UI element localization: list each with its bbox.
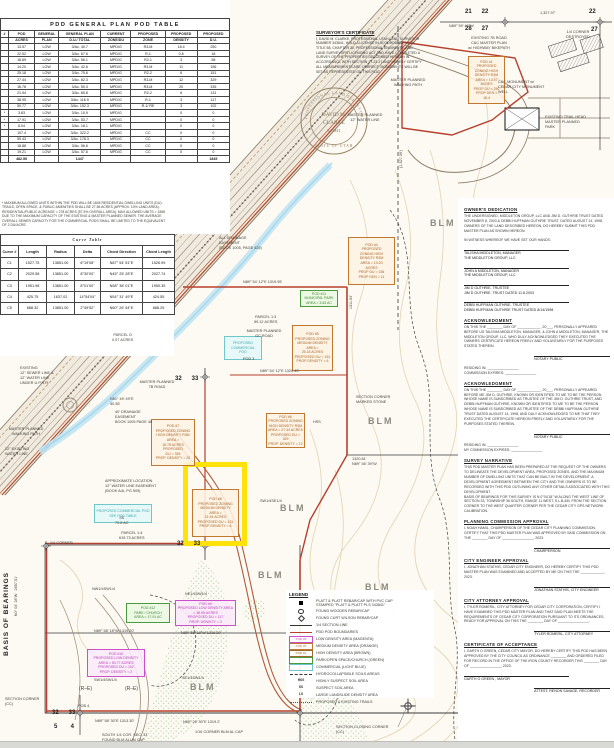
plat-sheet: PROFESSIONAL LAND SURVEYOR DAVID M. CLAR… xyxy=(0,0,614,748)
parcel-d: PARCEL D 0.07 ACRES xyxy=(112,333,133,343)
legend-dash-symbol xyxy=(289,672,313,678)
existing-sewer-label: EXISTING 12" SEWER LINE & 12" WATER LINE… xyxy=(20,366,58,386)
drainage-easement-2: 40' DRAINAGE EASEMENT BOOK 1005 PAGE 48 xyxy=(115,410,161,425)
legend-dots-symbol xyxy=(289,700,313,706)
pod-box-8: POD #8 PROPOSED ZONING MEDIUM DENSITY AR… xyxy=(192,489,239,537)
legend-item: HSSHIGHLY SUSPECT SOIL AREA xyxy=(289,679,431,685)
legend-title: LEGEND xyxy=(289,592,431,597)
legend-box-symbol: POD #1 xyxy=(289,651,313,657)
trail-head-box xyxy=(505,108,539,130)
bearing-top: N89° 59' 40"W xyxy=(449,24,474,29)
table-row: 59.43LOW3/Ac. 178.3MPD/GCC00 xyxy=(1,136,230,143)
legend-item-label: HIGHLY SUSPECT SOIL AREA xyxy=(316,679,368,683)
re-label-1: (R–E) xyxy=(79,686,92,693)
water-line-ne: MASTER PLANNED 12" WATER LINE xyxy=(347,113,383,123)
section-32-33-b: 32 33 xyxy=(177,541,200,547)
basis-of-bearings: BASIS OF BEARINGS xyxy=(3,572,10,656)
blm-label-5: BLM xyxy=(365,582,391,592)
table-row: C11527.7513851.006°19'08"N87° 54' 51"E15… xyxy=(1,257,175,268)
signature-line: ATTEST: RENON SAVAGE, RECORDER xyxy=(534,688,610,694)
legend-item: HYDROCOLLAPSIBLE SOILS AREAS xyxy=(289,672,431,678)
legend-redline-symbol xyxy=(289,630,313,636)
legend-box-symbol xyxy=(289,658,313,664)
walking-path-sw: MASTER PLANNED WALKING PATH xyxy=(8,427,44,437)
table-row: 18.88LOW3/Ac. 56.6MPD/GCC00 xyxy=(1,143,230,150)
legend-item: PROPOSED & EXISTING TRAILS xyxy=(289,700,431,706)
table-row: 50.77LOW3/Ac. 152.3MPD/GR-1/ RE3102 xyxy=(1,103,230,110)
corner-1-16: 1/16 CORNER BLM AL CAP xyxy=(195,730,243,735)
legend-items: PLATT & PLATT REBAR/CAP WITH PVC CAP STA… xyxy=(289,599,431,705)
ss-soil-area: SS 70.8 AC xyxy=(115,516,129,526)
seal-ring-bottom: STATE OF UTAH xyxy=(315,144,353,148)
certificate-body: THIS PDD MASTER PLAN HAS BEEN PREPARED A… xyxy=(464,465,610,514)
legend-line-symbol xyxy=(289,623,313,629)
blm-label-1: BLM xyxy=(430,218,456,228)
pod-box-9: POD #9 PROPOSED LOW DENSITY AREA = 38.95… xyxy=(175,600,236,626)
table-row: 13.57LOW3/Ac. 40.7MPD/GR3-M18.4250 xyxy=(1,44,230,51)
bearing-633b: N89° 55' 18"W 1319.20' xyxy=(181,631,221,636)
blm-label-4: BLM xyxy=(258,570,284,580)
legend-sq-symbol xyxy=(289,600,313,606)
legend-item-label: PLATT & PLATT REBAR/CAP WITH PVC CAP STA… xyxy=(316,599,393,607)
table-row: C31951.9813851.008°01'00"N58° 38' 01"E19… xyxy=(1,280,175,291)
quarter-sw14sw: SW1/4SW1/4 xyxy=(94,678,117,683)
legend-item: SSSUSPECT SOIL AREA xyxy=(289,686,431,692)
approx-water-easement: APPROXIMATE LOCATION 12" WATER LINE EASE… xyxy=(105,479,157,494)
legend-item-label: PDD POD BOUNDARIES xyxy=(316,630,358,634)
legend-item-label: MEDIUM DENSITY AREA (ORANGE) xyxy=(316,644,378,648)
distance-1320: 1320.81' N89° 46' 39"W xyxy=(352,457,377,467)
section-numbers-21-22: 21 22 xyxy=(465,9,488,15)
table-row: 21.94LOW3/Ac. 65.8MPD/GR2-26131 xyxy=(1,90,230,97)
bearing-n51: N51° 49' 49"E 50.35' xyxy=(110,397,134,407)
legend-item-label: PROPOSED & EXISTING TRAILS xyxy=(316,700,373,704)
signature-line: TYLER ROMERIL, CITY ATTORNEY xyxy=(534,631,610,637)
table-row: 19.21LOW3/Ac. 57.6MPD/GCC00 xyxy=(1,149,230,156)
certificate-block: CERTIFICATE OF ACCEPTANCEI, GARTH O GREE… xyxy=(464,642,610,694)
section-number-22r: 22 xyxy=(589,9,596,15)
certificate-block: CITY ATTORNEY APPROVALI, TYLER ROMERIL, … xyxy=(464,598,610,637)
basis-bearing-value: N0° 04' 18"W 2657.51' xyxy=(14,576,18,616)
signature-line: JONATHAN STATHIS, CITY ENGINEER xyxy=(534,587,610,593)
blm-label-3: BLM xyxy=(280,503,306,513)
legend-item: POD #5MEDIUM DENSITY AREA (ORANGE) xyxy=(289,644,431,650)
certificate-title: ACKNOWLEDGMENT xyxy=(464,318,610,323)
table-row: C5688.3213851.002°49'52"N60° 26' 54"E688… xyxy=(1,303,175,314)
signature-line: JOHN A MIDDLETON, MANAGER THE MIDDLETON … xyxy=(464,268,569,278)
pod-table: PDD GENERAL PLAN POD TABLE#PODGENERALGEN… xyxy=(0,18,230,163)
signature-line: GARTH O GREEN , MAYOR xyxy=(464,676,569,682)
certificate-title: OWNER'S DEDICATION xyxy=(464,207,610,212)
quarter-sw14se: SW1/4SE1/4 xyxy=(260,499,282,504)
table-row: C4425.751637.0214°54'04"N54° 31' 49"E424… xyxy=(1,291,175,302)
pod-box-4: POD #4 PROPOSED ZONING HIGH DENSITY R3M … xyxy=(348,237,395,285)
legend-diamond-symbol xyxy=(289,616,313,622)
certificates-panel: OWNER'S DEDICATIONTHE UNDERSIGNED, MIDDL… xyxy=(458,198,614,748)
curve-table: Curve TableCurve #LengthRadiusDeltaChord… xyxy=(0,234,175,315)
pod-box-5: POD #5 PROPOSED ZONING MEDIUM DENSITY AR… xyxy=(292,325,333,371)
hss-label: HSS xyxy=(313,420,321,425)
parcel-1-4: PARCEL 1:4 615.73 ACRES xyxy=(119,531,145,541)
existing-water-line: 12" EXISTING WATER LINE xyxy=(5,447,29,457)
section-32-33-c: 32 33 xyxy=(52,710,75,716)
legend-item-label: FOUND CURT WILSON REBAR/CAP xyxy=(316,616,378,620)
signature-line: TALISHA MIDDLETON, MANAGER THE MIDDLETON… xyxy=(464,250,569,260)
legend-text-symbol: HSS xyxy=(289,679,313,685)
certificate-title: PLANNING COMMISSION APPROVAL xyxy=(464,519,610,524)
signature-line: NOTARY PUBLIC xyxy=(534,356,610,362)
bearing-bottom-1: N89° 58' 30"E 1313.30' xyxy=(95,719,134,724)
certificate-title: CERTIFICATE OF ACCEPTANCE xyxy=(464,642,610,647)
table-title-row: PDD GENERAL PLAN POD TABLE xyxy=(1,19,230,31)
pod-table-footnote: * MAXIMUM ALLOWED UNITS WITHIN THE PDD W… xyxy=(2,201,228,228)
certificate-body: ON THIS THE ________ DAY OF ____________… xyxy=(464,325,610,349)
table-row: 18.69LOW3/Ac. 56.1MPD/GR2-1358 xyxy=(1,57,230,64)
certificate-block: ACKNOWLEDGMENTON THIS THE ________ DAY O… xyxy=(464,381,610,454)
legend-item: PDD POD BOUNDARIES xyxy=(289,630,431,636)
legend-item: FOUND WOODEN REBAR/CAP xyxy=(289,609,431,615)
legend-item: POD #9LOW DENSITY AREA (MAGENTA) xyxy=(289,637,431,643)
legend-text-symbol: LS xyxy=(289,693,313,699)
certificate-block: SURVEY NARRATIVETHIS PDD MASTER PLAN HAS… xyxy=(464,458,610,514)
pod-box-10: POD #10 PROPOSED LOW DENSITY AREA = 50.7… xyxy=(87,649,145,677)
legend-item-label: SUSPECT SOIL AREA xyxy=(316,686,354,690)
table-row: 22.52LOW3/Ac. 67.6MPD/GR-10.818 xyxy=(1,50,230,57)
seal-name-1: DAVID M. xyxy=(322,112,347,118)
certificate-body: I, NOAH HAMIL, CHAIRPERSON OF THE CEDAR … xyxy=(464,526,610,541)
pod-table-panel: PDD GENERAL PLAN POD TABLE#PODGENERALGEN… xyxy=(0,0,230,234)
table-row: *6.04LOW3/Ac. 18.1MPD/G00 xyxy=(1,123,230,130)
pob-4-label: POB 4 xyxy=(78,704,89,709)
certificate-title: CITY ATTORNEY APPROVAL xyxy=(464,598,610,603)
surveyor-certificate-title: SURVEYOR'S CERTIFICATE xyxy=(316,30,422,35)
seal-number: 343841 xyxy=(327,128,341,133)
legend-item: LSLARGE LANDSLIDE DENSITY AREA xyxy=(289,693,431,699)
legend-text-symbol: SS xyxy=(289,686,313,692)
parcel-1-3: PARCEL 1:3 59.12 ACRES xyxy=(254,315,277,325)
legend-item-label: LOW DENSITY AREA (MAGENTA) xyxy=(316,637,373,641)
legend-item-label: HIGH DENSITY AREA (BROWN) xyxy=(316,651,370,655)
table-row: 38.95LOW3/Ac. 116.9MPD/GR-13117 xyxy=(1,96,230,103)
certificate-title: CITY ENGINEER APPROVAL xyxy=(464,558,610,563)
legend-panel: LEGEND PLATT & PLATT REBAR/CAP WITH PVC … xyxy=(286,590,434,698)
master-7b-road: MASTER PLANNED 7B ROAD xyxy=(138,380,176,390)
bearing-bottom-2: N89° 26' 30"E 1319.2' xyxy=(183,720,220,725)
certificate-block: PLANNING COMMISSION APPROVALI, NOAH HAMI… xyxy=(464,519,610,553)
section-5-4: 5 4 xyxy=(54,724,74,730)
legend-item-label: COMMERCIAL (LIGHT BLUE) xyxy=(316,665,366,669)
certificate-after-lines: RESIDING IN: ________________ MY COMMISS… xyxy=(464,443,610,453)
table-row: C22029.5813851.008°30'00"N45° 25' 28"E20… xyxy=(1,269,175,280)
legend-box-symbol: POD #5 xyxy=(289,644,313,650)
certificate-body: I, GARTH O GREEN, CEDAR CITY MAYOR, DO H… xyxy=(464,649,610,669)
distance-1327v: (1,327.39') xyxy=(399,150,403,168)
table-row: 25.18LOW3/Ac. 75.6MPD/GR2-26151 xyxy=(1,70,230,77)
legend-circle-symbol xyxy=(289,609,313,615)
section-corner-stone: SECTION CORNER MARKED STONE xyxy=(356,395,396,405)
legend-item-label: HYDROCOLLAPSIBLE SOILS AREAS xyxy=(316,672,380,676)
legend-item: COMMERCIAL (LIGHT BLUE) xyxy=(289,665,431,671)
signature-line: JIM D GUTHRIE, TRUSTEE JIM D GUTHRIE, TR… xyxy=(464,285,569,295)
section-corner-cc: SECTION CORNER (CC) xyxy=(5,697,39,707)
legend-item-label: LARGE LANDSLIDE DENSITY AREA xyxy=(316,693,378,697)
bearing-287: N89° 54' 12"E 1319.95' xyxy=(243,280,282,285)
table-row: 16.78LOW3/Ac. 50.3MPD/GR3-M20335 xyxy=(1,83,230,90)
table-row: *3.63LOW3/Ac. 10.9MPD/G00 xyxy=(1,110,230,117)
legend-item-label: FOUND WOODEN REBAR/CAP xyxy=(316,609,369,613)
pod-box-12: POD #12 PARK / CHURCH AREA = 17.91 AC xyxy=(126,603,170,623)
legend-item: POD #1HIGH DENSITY AREA (BROWN) xyxy=(289,651,431,657)
seal-name-2: CLARKE xyxy=(323,120,346,126)
certificate-block: CITY ENGINEER APPROVALI, JONATHAN STATHI… xyxy=(464,558,610,592)
table-header-row: ACRESPLAND.U./ TOTALZONE/DUZONEDENSITYD.… xyxy=(1,37,230,44)
certificate-title: SURVEY NARRATIVE xyxy=(464,458,610,463)
blm-label-6: BLM xyxy=(190,682,216,692)
certificate-body: THE UNDERSIGNED, MIDDLETON GROUP, LLC AN… xyxy=(464,214,610,243)
gc-road-label: MASTER PLANNED GC ROAD xyxy=(246,329,282,339)
certificate-after-lines: RESIDING IN: ________________ COMMISSION… xyxy=(464,366,610,376)
certificate-title: ACKNOWLEDGMENT xyxy=(464,381,610,386)
quarter-se14sw: SE1/4SW1/4 xyxy=(182,676,204,681)
legend-item-label: 1/4 SECTION LINE xyxy=(316,623,348,627)
table-row: *17.91LOW3/Ac. 53.7MPD/G00 xyxy=(1,116,230,123)
certificate-body: I, JONATHAN STATHIS, CEDAR CITY ENGINEER… xyxy=(464,565,610,580)
pod-box-6: POD #6 PROPOSED ZONING HIGH DENSITY R3M … xyxy=(266,413,305,448)
quarter-nw14sw: NW1/4SW1/4 xyxy=(92,587,115,592)
pod-box-7: POD #7 PROPOSED ZONING HIGH DENSITY R3M … xyxy=(151,419,195,466)
trail-head-label: EXISTING TRAIL HEAD MASTER PLANNED PARK xyxy=(545,115,591,130)
bearing-633a: N89° 58' 18"W 1319.20' xyxy=(94,629,134,634)
legend-item: 1/4 SECTION LINE xyxy=(289,623,431,629)
quarter-corner: 1/4 CORNER xyxy=(50,541,73,546)
re-label-2: (R–E) xyxy=(125,686,138,693)
signature-line: CHAIRPERSON xyxy=(534,548,610,554)
surveyor-certificate: SURVEYOR'S CERTIFICATE I, DAVID M. CLARK… xyxy=(316,30,422,74)
table-row: 27.44LOW3/Ac. 82.3MPD/GR3-M12329 xyxy=(1,77,230,84)
legend-item: PARK/OPEN SPACE/CHURCH (GREEN) xyxy=(289,658,431,664)
existing-7b-road-label: EXISTING 7B ROAD C&C MASTER PLAN w/ HIGH… xyxy=(466,36,512,51)
section-32-33-a: 32 33 xyxy=(175,376,198,382)
signature-line: DEBBI HUFFMAN GUTHRIE, TRUSTEE DEBBI HUF… xyxy=(464,302,569,312)
legend-box-symbol: POD #9 xyxy=(289,637,313,643)
table-row: 14.20LOW3/Ac. 42.6MPD/GR3-M11156 xyxy=(1,63,230,70)
bearing-375: N89° 54' 12"E 1320.40' xyxy=(260,369,299,374)
table-header-row: Curve #LengthRadiusDeltaChord DirectionC… xyxy=(1,246,175,257)
table-header-row: #PODGENERALGENERAL PLANCURRENTPROPOSEDPR… xyxy=(1,31,230,38)
surveyor-certificate-body: I, DAVID M. CLARKE, PROFESSIONAL UTAH LA… xyxy=(316,37,422,75)
legend-item: FOUND CURT WILSON REBAR/CAP xyxy=(289,616,431,622)
certificate-block: OWNER'S DEDICATIONTHE UNDERSIGNED, MIDDL… xyxy=(464,207,610,313)
table-title-row: Curve Table xyxy=(1,235,175,246)
certificate-body: I, TYLER ROMERIL, CITY ATTORNEY FOR CEDA… xyxy=(464,605,610,625)
blm-label-2: BLM xyxy=(368,416,394,426)
certificate-body: ON THIS THE ________ DAY OF ____________… xyxy=(464,388,610,427)
quarter-ne14sw: NE1/4SW1/4 xyxy=(185,592,207,597)
legend-item-label: PARK/OPEN SPACE/CHURCH (GREEN) xyxy=(316,658,384,662)
section-closing-corner: SECTION CLOSING CORNER (CC) xyxy=(336,725,389,735)
table-row: 107.4LOW3/Ac. 322.2MPD/GCC00 xyxy=(1,129,230,136)
distance-top: 1,327.97' xyxy=(540,11,556,16)
pod-3-label: POD 3 xyxy=(243,357,254,362)
legend-item: PLATT & PLATT REBAR/CAP WITH PVC CAP STA… xyxy=(289,599,431,607)
walking-path-ne: MASTER PLANNED WALKING PATH xyxy=(390,78,426,88)
table-total-row: 482.5514471845 xyxy=(1,156,230,163)
legend-box-symbol xyxy=(289,665,313,671)
signature-line: NOTARY PUBLIC xyxy=(534,434,610,440)
certificate-block: ACKNOWLEDGMENTON THIS THE ________ DAY O… xyxy=(464,318,610,376)
distance-1311: 1311.04' xyxy=(349,295,353,309)
cc-monument-label: C&C MONUMENT w/ CEDAR CITY MONUMENT WELL xyxy=(498,80,548,95)
quarter-corner-destroyed: 1/4 CORNER DESTROYED xyxy=(556,30,600,40)
pod-box-11: POD #11 MUNICIPAL PARK AREA = 3.63 AC xyxy=(300,290,338,307)
sheet-bottom-edge xyxy=(0,741,614,748)
curve-table-panel: Curve TableCurve #LengthRadiusDeltaChord… xyxy=(0,234,174,356)
drainage-easement-1: ALL DRAINAGE EASEMENT (BOOK 1005, PAGE 4… xyxy=(219,236,267,251)
